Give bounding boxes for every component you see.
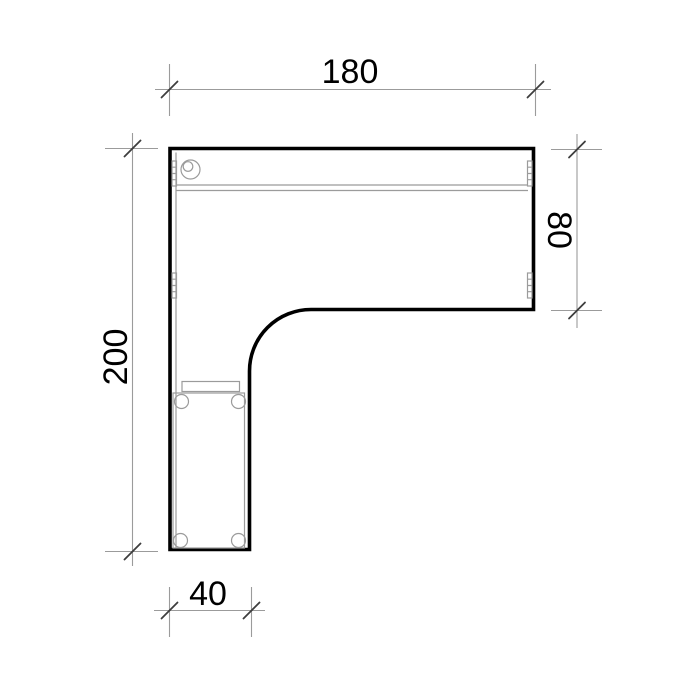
technical-drawing-canvas: 180 80 200 40 bbox=[0, 0, 700, 700]
dim-label-top: 180 bbox=[280, 55, 420, 89]
dim-label-left: 200 bbox=[99, 287, 133, 427]
dim-label-right: 80 bbox=[542, 160, 576, 300]
dim-label-bottom: 40 bbox=[138, 577, 278, 611]
